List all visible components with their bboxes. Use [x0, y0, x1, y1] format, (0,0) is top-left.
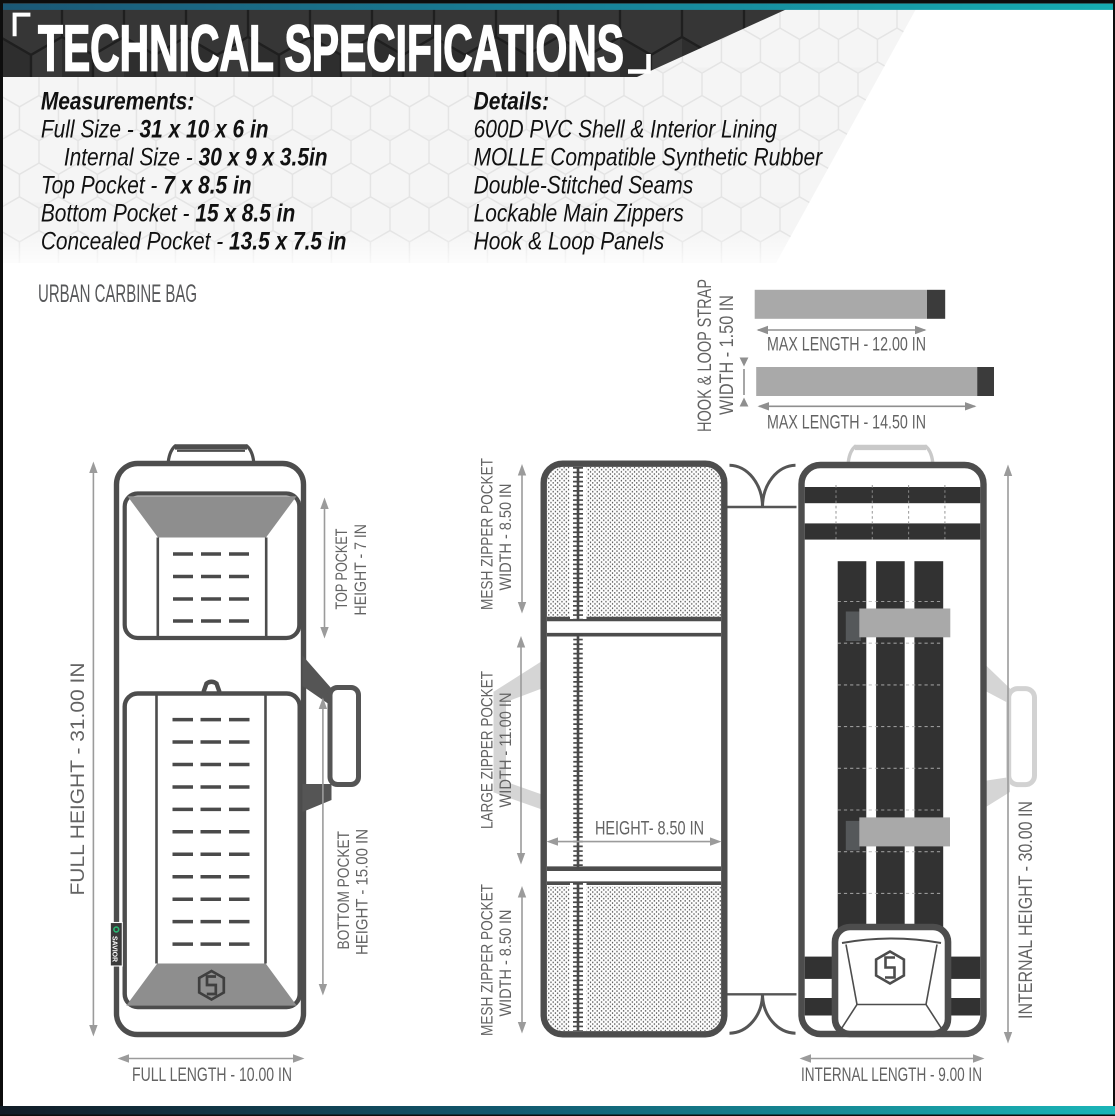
svg-text:HEIGHT - 15.00 IN: HEIGHT - 15.00 IN: [353, 829, 372, 955]
svg-text:LARGE ZIPPER POCKET: LARGE ZIPPER POCKET: [477, 671, 496, 829]
svg-text:Double-Stitched Seams: Double-Stitched Seams: [474, 171, 694, 199]
svg-text:TOP POCKET: TOP POCKET: [332, 529, 351, 610]
svg-text:MAX LENGTH - 12.00 IN: MAX LENGTH - 12.00 IN: [767, 335, 926, 356]
svg-text:URBAN CARBINE BAG: URBAN CARBINE BAG: [38, 280, 197, 308]
svg-text:INTERNAL LENGTH - 9.00 IN: INTERNAL LENGTH - 9.00 IN: [801, 1064, 982, 1086]
svg-text:Bottom Pocket - 15 x 8.5 in: Bottom Pocket - 15 x 8.5 in: [41, 199, 295, 227]
svg-text:Internal Size - 30 x 9 x 3.5in: Internal Size - 30 x 9 x 3.5in: [64, 143, 328, 171]
svg-text:MAX LENGTH - 14.50 IN: MAX LENGTH - 14.50 IN: [767, 412, 926, 433]
svg-text:Concealed Pocket - 13.5 x 7.5: Concealed Pocket - 13.5 x 7.5 in: [41, 227, 347, 255]
svg-text:HOOK & LOOP STRAP: HOOK & LOOP STRAP: [695, 279, 716, 432]
svg-text:MESH ZIPPER POCKET: MESH ZIPPER POCKET: [477, 884, 496, 1036]
svg-text:WIDTH - 1.50 IN: WIDTH - 1.50 IN: [717, 295, 738, 415]
svg-text:WIDTH - 8.50 IN: WIDTH - 8.50 IN: [496, 910, 515, 1017]
svg-text:MOLLE Compatible Synthetic Rub: MOLLE Compatible Synthetic Rubber: [474, 143, 824, 171]
svg-text:WIDTH - 11.00 IN: WIDTH - 11.00 IN: [496, 693, 515, 808]
svg-text:FULL LENGTH - 10.00 IN: FULL LENGTH - 10.00 IN: [132, 1064, 292, 1086]
svg-text:Full Size - 31 x 10 x 6 in: Full Size - 31 x 10 x 6 in: [41, 115, 269, 143]
svg-text:Lockable Main Zippers: Lockable Main Zippers: [474, 199, 685, 227]
svg-text:WIDTH - 8.50 IN: WIDTH - 8.50 IN: [496, 484, 515, 591]
svg-text:SAVIOR: SAVIOR: [111, 936, 120, 962]
svg-text:HEIGHT - 7 IN: HEIGHT - 7 IN: [351, 524, 370, 616]
svg-text:HEIGHT- 8.50 IN: HEIGHT- 8.50 IN: [595, 818, 704, 840]
svg-text:TECHNICAL SPECIFICATIONS: TECHNICAL SPECIFICATIONS: [38, 12, 624, 85]
svg-text:FULL HEIGHT - 31.00 IN: FULL HEIGHT - 31.00 IN: [67, 663, 89, 896]
svg-text:Details:: Details:: [474, 87, 550, 115]
svg-text:Hook & Loop Panels: Hook & Loop Panels: [474, 227, 665, 255]
svg-text:MESH ZIPPER POCKET: MESH ZIPPER POCKET: [477, 458, 496, 610]
svg-text:Top Pocket - 7 x 8.5 in: Top Pocket - 7 x 8.5 in: [41, 171, 252, 199]
svg-text:600D PVC Shell & Interior Lini: 600D PVC Shell & Interior Lining: [474, 115, 777, 143]
svg-text:Measurements:: Measurements:: [41, 87, 194, 115]
svg-text:INTERNAL HEIGHT - 30.00 IN: INTERNAL HEIGHT - 30.00 IN: [1015, 801, 1037, 1019]
svg-text:BOTTOM POCKET: BOTTOM POCKET: [334, 831, 353, 950]
